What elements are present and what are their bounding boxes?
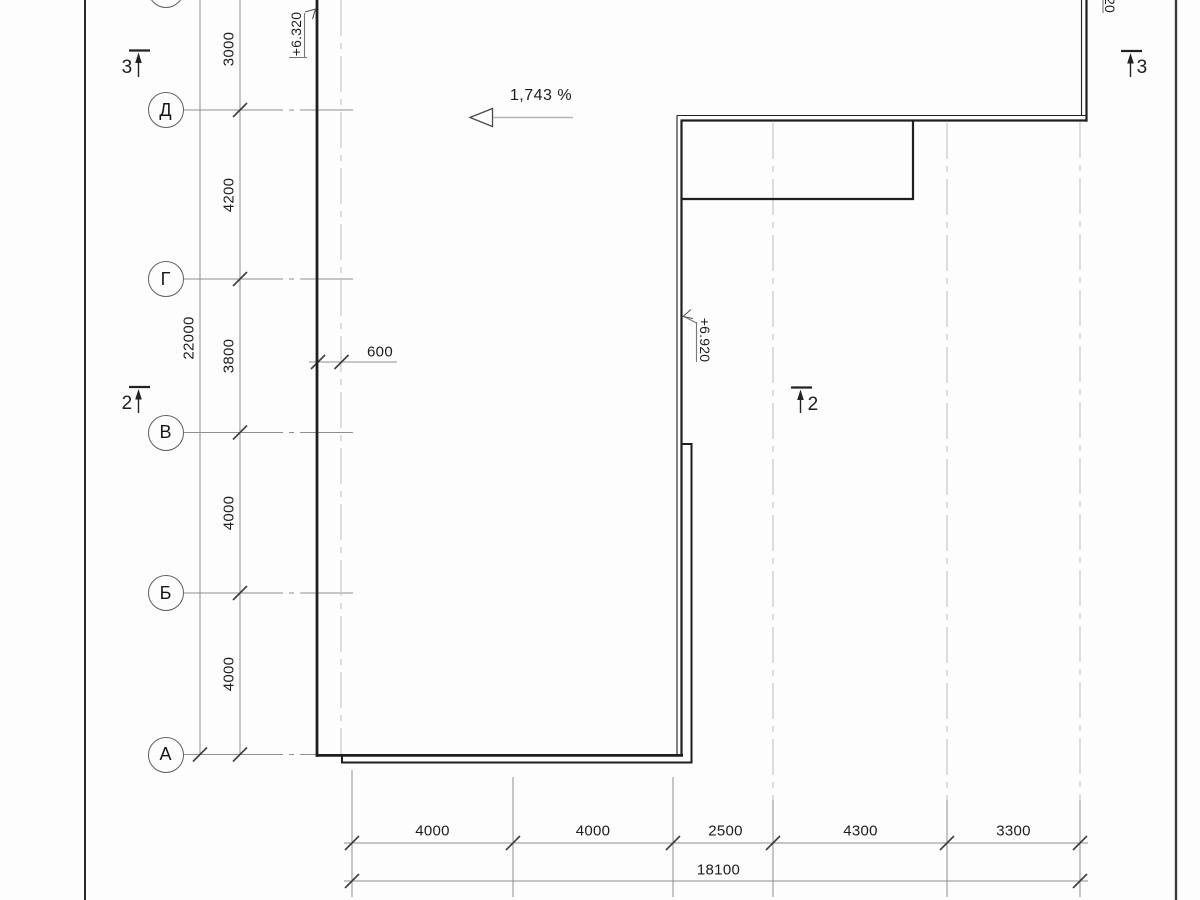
building-outline — [316, 0, 1088, 757]
slope-arrowhead-icon — [470, 109, 493, 127]
axis-bubble-d: Д — [148, 92, 184, 128]
dim-label-bottom-3300: 3300 — [996, 823, 1031, 840]
dim-label-bottom-2500: 2500 — [708, 823, 743, 840]
section-arrowhead-icon — [797, 390, 804, 401]
section-label-top-left: 3 — [122, 57, 133, 79]
elevation-leader-inner-wall — [683, 310, 697, 363]
section-arrowhead-icon — [135, 53, 142, 64]
axis-bubble-v: В — [148, 415, 184, 451]
elevation-label-top-right-partial: 020 — [1102, 0, 1118, 13]
dim-label-4200: 4200 — [221, 177, 238, 212]
dim-label-bottom-4300: 4300 — [843, 823, 878, 840]
dim-label-4000-lower: 4000 — [221, 656, 238, 691]
dim-label-bottom-18100: 18100 — [697, 862, 740, 879]
axis-label: В — [159, 422, 171, 443]
dim-ticks — [193, 103, 1087, 888]
section-label-mid-left: 2 — [122, 393, 133, 415]
axis-label: А — [159, 744, 171, 765]
axis-bubble-b: Б — [148, 575, 184, 611]
axis-bubble-g: Г — [148, 261, 184, 297]
slope-label: 1,743 % — [510, 87, 572, 105]
dim-label-600: 600 — [367, 344, 393, 361]
section-label-mid-center: 2 — [808, 394, 819, 416]
dim-label-3000: 3000 — [221, 32, 238, 67]
elevation-arrowhead-icon — [305, 9, 316, 19]
axis-label: Б — [160, 583, 172, 604]
dim-label-bottom-4000-b: 4000 — [576, 823, 611, 840]
slope-arrow — [470, 109, 573, 127]
section-label-top-right: 3 — [1137, 57, 1148, 79]
elevation-arrowhead-icon — [683, 310, 693, 319]
section-arrowhead-icon — [1127, 53, 1134, 64]
inner-roof-rect — [681, 121, 914, 201]
canopy-outline — [342, 444, 692, 763]
axis-label: Д — [159, 100, 171, 121]
dim-label-22000: 22000 — [181, 316, 198, 359]
roof-plan-drawing: Д Г В Б А 3000 4200 3800 4000 4000 22000… — [0, 0, 1200, 900]
sheet-frame — [85, 0, 1176, 900]
axis-label: Г — [161, 269, 171, 290]
dim-label-bottom-4000-a: 4000 — [415, 823, 450, 840]
axis-bubble-a: А — [148, 737, 184, 773]
elevation-label-upper-left: +6.320 — [288, 11, 304, 55]
dim-label-3800: 3800 — [221, 338, 238, 373]
section-arrowhead-icon — [135, 389, 142, 400]
dim-label-4000-upper: 4000 — [221, 495, 238, 530]
elevation-label-inner-wall: +6.920 — [697, 318, 713, 362]
